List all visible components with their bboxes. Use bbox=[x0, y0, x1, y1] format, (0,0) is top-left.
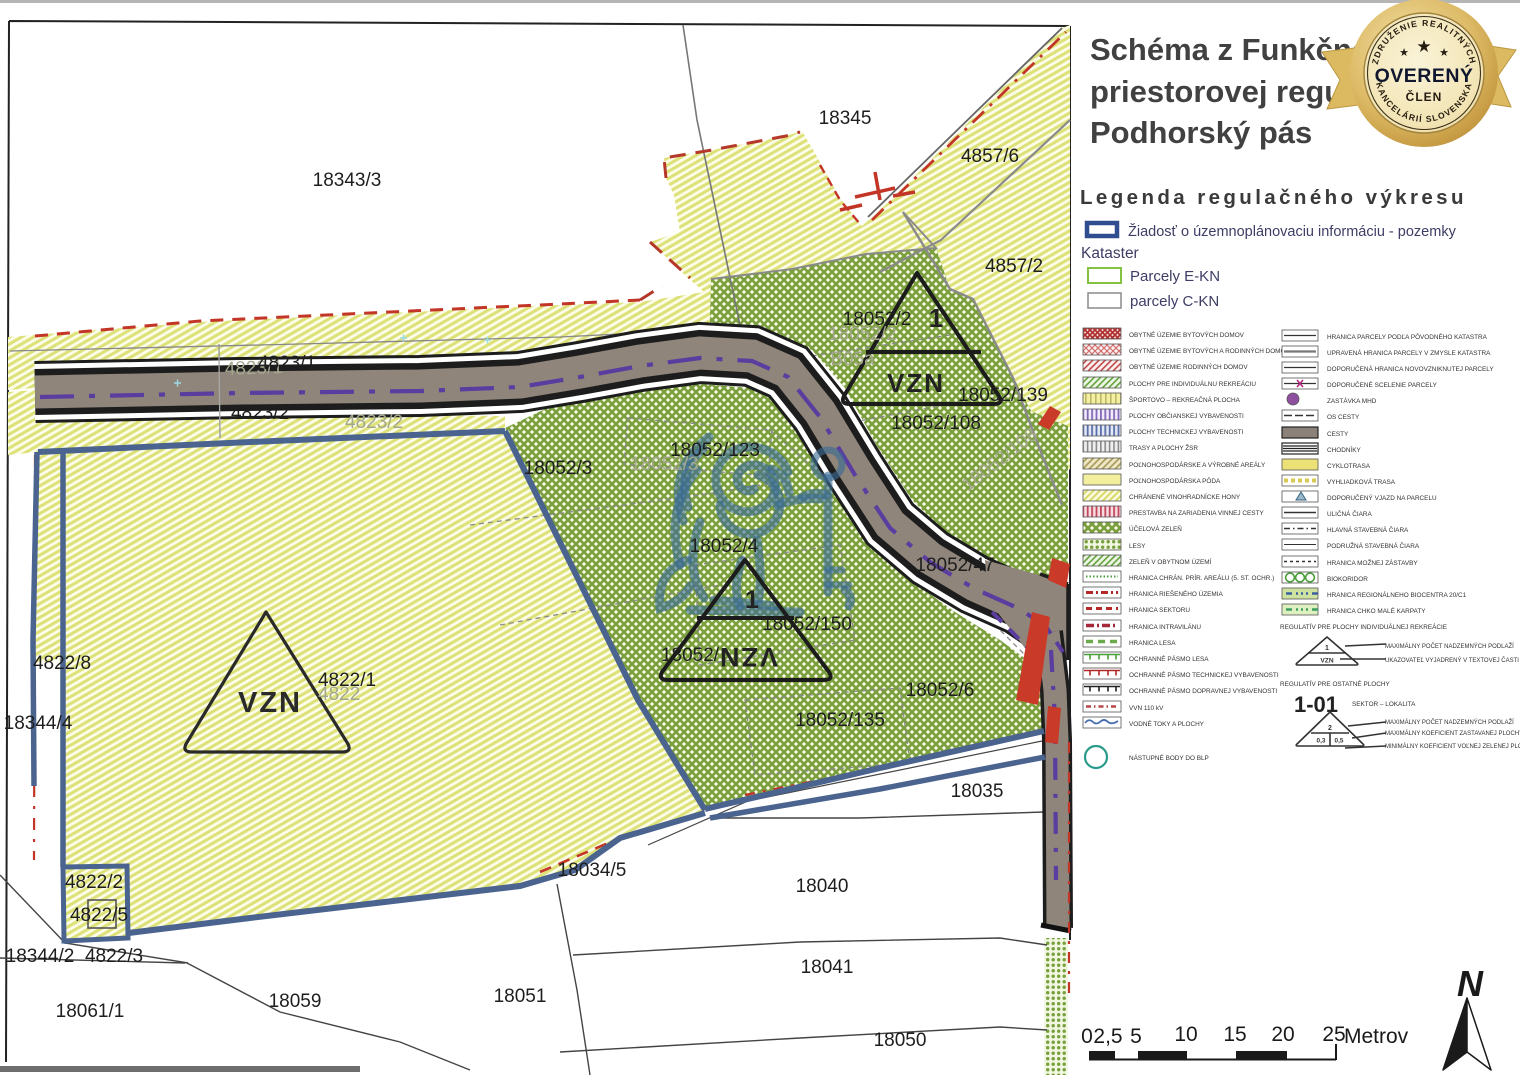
svg-text:HRANICA CHKO MALÉ KARPATY: HRANICA CHKO MALÉ KARPATY bbox=[1327, 606, 1426, 615]
svg-text:CYKLOTRASA: CYKLOTRASA bbox=[1327, 463, 1371, 470]
svg-text:DOPORUČENÁ HRANICA NOVOVZNIKNU: DOPORUČENÁ HRANICA NOVOVZNIKNUTEJ PARCEL… bbox=[1327, 364, 1494, 373]
svg-text:REGULATÍV PRE OSTATNÉ PLOCHY: REGULATÍV PRE OSTATNÉ PLOCHY bbox=[1280, 679, 1390, 688]
svg-text:18061/1: 18061/1 bbox=[56, 1001, 125, 1022]
svg-text:4822/8: 4822/8 bbox=[33, 653, 91, 674]
svg-text:10: 10 bbox=[1174, 1023, 1197, 1046]
svg-text:4822/2: 4822/2 bbox=[65, 872, 123, 893]
svg-text:OBYTNÉ ÚZEMIE BYTOVÝCH DOMOV: OBYTNÉ ÚZEMIE BYTOVÝCH DOMOV bbox=[1129, 330, 1245, 339]
svg-text:★: ★ bbox=[1439, 47, 1449, 59]
svg-text:★: ★ bbox=[1416, 37, 1431, 56]
svg-text:HRANICA LESA: HRANICA LESA bbox=[1129, 640, 1176, 647]
svg-text:MINIMÁLNY KOEFICIENT VOĽNEJ ZE: MINIMÁLNY KOEFICIENT VOĽNEJ ZELENEJ PLOC… bbox=[1385, 743, 1520, 750]
svg-text:OBYTNÉ ÚZEMIE RODINNÝCH DOMOV: OBYTNÉ ÚZEMIE RODINNÝCH DOMOV bbox=[1129, 362, 1248, 371]
svg-text:OS CESTY: OS CESTY bbox=[1327, 414, 1360, 421]
svg-text:OBYTNÉ ÚZEMIE BYTOVÝCH A RODIN: OBYTNÉ ÚZEMIE BYTOVÝCH A RODINNÝCH DOMOV bbox=[1129, 346, 1290, 355]
svg-text:HRANICA SEKTORU: HRANICA SEKTORU bbox=[1129, 607, 1190, 614]
svg-text:UKAZOVATEĽ VYJADRENÝ V TEXTOVE: UKAZOVATEĽ VYJADRENÝ V TEXTOVEJ ČASTI bbox=[1385, 657, 1519, 664]
svg-text:TRASY A PLOCHY ŽSR: TRASY A PLOCHY ŽSR bbox=[1129, 443, 1198, 452]
svg-text:ULIČNÁ ČIARA: ULIČNÁ ČIARA bbox=[1327, 509, 1372, 518]
svg-text:4823/2: 4823/2 bbox=[231, 403, 289, 424]
svg-text:DOPORUČENÉ SCELENIE PARCELY: DOPORUČENÉ SCELENIE PARCELY bbox=[1327, 380, 1438, 389]
svg-text:OCHRANNÉ PÁSMO LESA: OCHRANNÉ PÁSMO LESA bbox=[1129, 654, 1209, 663]
svg-text:18052/4: 18052/4 bbox=[690, 536, 759, 557]
svg-text:VODNÉ TOKY A PLOCHY: VODNÉ TOKY A PLOCHY bbox=[1129, 719, 1205, 728]
svg-text:NÁSTUPNÉ BODY DO BLP: NÁSTUPNÉ BODY DO BLP bbox=[1129, 753, 1209, 762]
svg-text:4823/2: 4823/2 bbox=[345, 412, 403, 433]
svg-text:SEKTOR – LOKALITA: SEKTOR – LOKALITA bbox=[1352, 701, 1416, 708]
svg-text:18343/3: 18343/3 bbox=[313, 170, 382, 191]
svg-text:CHODNÍKY: CHODNÍKY bbox=[1327, 445, 1361, 454]
svg-text:VZN: VZN bbox=[238, 687, 302, 719]
svg-text:PRESTAVBA NA ZARIADENIA VINNEJ: PRESTAVBA NA ZARIADENIA VINNEJ CESTY bbox=[1129, 510, 1264, 517]
svg-text:MAXIMÁLNY POČET NADZEMNÝCH POD: MAXIMÁLNY POČET NADZEMNÝCH PODLAŽÍ bbox=[1385, 642, 1514, 650]
svg-text:N: N bbox=[1457, 963, 1484, 1004]
svg-text:HRANICA PARCELY PODĽA PÔVODNÉH: HRANICA PARCELY PODĽA PÔVODNÉHO KATASTRA bbox=[1327, 332, 1488, 341]
svg-text:ÚČELOVÁ ZELEŇ: ÚČELOVÁ ZELEŇ bbox=[1129, 524, 1182, 533]
svg-text:VZN: VZN bbox=[718, 642, 778, 672]
svg-text:POĽNOHOSPODÁRSKE A VÝROBNÉ ARE: POĽNOHOSPODÁRSKE A VÝROBNÉ AREÁLY bbox=[1129, 460, 1266, 469]
svg-text:ZELEŇ V OBYTNOM ÚZEMÍ: ZELEŇ V OBYTNOM ÚZEMÍ bbox=[1129, 557, 1212, 566]
svg-text:18052/150: 18052/150 bbox=[762, 614, 852, 635]
svg-text:18052/2: 18052/2 bbox=[843, 309, 912, 330]
svg-text:4857/6: 4857/6 bbox=[961, 146, 1019, 167]
svg-text:HRANICA MOŽNEJ ZÁSTAVBY: HRANICA MOŽNEJ ZÁSTAVBY bbox=[1327, 558, 1418, 567]
svg-text:Žiadosť o územnoplánovaciu inf: Žiadosť o územnoplánovaciu informáciu - … bbox=[1128, 223, 1457, 240]
svg-text:HRANICA RIEŠENÉHO ÚZEMIA: HRANICA RIEŠENÉHO ÚZEMIA bbox=[1129, 589, 1223, 598]
svg-text:ČLEN: ČLEN bbox=[1406, 89, 1443, 104]
svg-text:HRANICA REGIONÁLNEHO BIOCENTRA: HRANICA REGIONÁLNEHO BIOCENTRA 20/C1 bbox=[1327, 590, 1467, 599]
svg-text:18035: 18035 bbox=[951, 781, 1004, 802]
svg-text:4823/1: 4823/1 bbox=[258, 353, 316, 374]
svg-text:★: ★ bbox=[1399, 47, 1409, 59]
svg-text:VVN 110 kV: VVN 110 kV bbox=[1129, 705, 1164, 712]
svg-text:18052/: 18052/ bbox=[661, 645, 720, 666]
svg-text:OVERENÝ: OVERENÝ bbox=[1375, 63, 1474, 87]
svg-text:18052/123: 18052/123 bbox=[670, 440, 760, 461]
svg-text:OCHRANNÉ PÁSMO DOPRAVNEJ VYBAV: OCHRANNÉ PÁSMO DOPRAVNEJ VYBAVENOSTI bbox=[1129, 686, 1277, 695]
svg-text:5: 5 bbox=[1130, 1025, 1142, 1048]
svg-text:18344/2: 18344/2 bbox=[6, 946, 75, 967]
svg-text:18052/47: 18052/47 bbox=[915, 555, 994, 576]
svg-text:parcely C-KN: parcely C-KN bbox=[1130, 293, 1219, 310]
svg-text:18052/3: 18052/3 bbox=[524, 458, 593, 479]
svg-text:PODRUŽNÁ STAVEBNÁ ČIARA: PODRUŽNÁ STAVEBNÁ ČIARA bbox=[1327, 541, 1420, 550]
svg-text:2,5: 2,5 bbox=[1093, 1025, 1122, 1048]
svg-text:20: 20 bbox=[1271, 1023, 1294, 1046]
svg-text:VZN: VZN bbox=[887, 368, 945, 398]
svg-text:Parcely E-KN: Parcely E-KN bbox=[1130, 268, 1220, 285]
svg-text:MAXIMÁLNY KOEFICIENT ZASTAVANE: MAXIMÁLNY KOEFICIENT ZASTAVANEJ PLOCHY bbox=[1385, 730, 1520, 737]
svg-text:18059: 18059 bbox=[269, 991, 322, 1012]
svg-text:.B05a: .B05a bbox=[825, 349, 875, 370]
svg-text:18051: 18051 bbox=[494, 986, 547, 1007]
svg-text:VYHLIADKOVÁ TRASA: VYHLIADKOVÁ TRASA bbox=[1327, 477, 1396, 486]
svg-text:PLOCHY PRE INDIVIDUÁLNU REKREÁ: PLOCHY PRE INDIVIDUÁLNU REKREÁCIU bbox=[1129, 379, 1256, 388]
svg-text:REGULATÍV PRE PLOCHY INDIVIDUÁ: REGULATÍV PRE PLOCHY INDIVIDUÁLNEJ REKRE… bbox=[1280, 622, 1447, 631]
svg-text:4857/2: 4857/2 bbox=[985, 256, 1043, 277]
svg-text:18345: 18345 bbox=[819, 108, 872, 129]
svg-text:18041: 18041 bbox=[801, 957, 854, 978]
svg-text:HRANICA INTRAVILÁNU: HRANICA INTRAVILÁNU bbox=[1129, 622, 1201, 631]
svg-text:18052/108: 18052/108 bbox=[891, 413, 981, 434]
svg-text:18034/5: 18034/5 bbox=[558, 860, 627, 881]
svg-text:Kataster: Kataster bbox=[1081, 245, 1139, 262]
svg-text:HRANICA CHRÁN. PRÍR. AREÁLU (5: HRANICA CHRÁN. PRÍR. AREÁLU (5. ST. OCHR… bbox=[1129, 573, 1274, 582]
svg-text:18052/139: 18052/139 bbox=[958, 385, 1048, 406]
svg-text:ŠPORTOVO – REKREAČNÁ PLOCHA: ŠPORTOVO – REKREAČNÁ PLOCHA bbox=[1129, 395, 1241, 404]
svg-text:4822/3: 4822/3 bbox=[85, 946, 143, 967]
svg-text:1: 1 bbox=[1325, 645, 1329, 652]
svg-text:1: 1 bbox=[745, 586, 759, 614]
svg-text:18052/6: 18052/6 bbox=[906, 680, 975, 701]
svg-text:1: 1 bbox=[929, 303, 943, 333]
svg-text:OCHRANNÉ PÁSMO TECHNICKEJ VYBA: OCHRANNÉ PÁSMO TECHNICKEJ VYBAVENOSTI bbox=[1129, 670, 1279, 679]
svg-text:18040: 18040 bbox=[796, 876, 849, 897]
svg-text:18344/4: 18344/4 bbox=[4, 713, 73, 734]
svg-text:Podhorský pás: Podhorský pás bbox=[1090, 115, 1312, 150]
svg-text:POĽNOHOSPODÁRSKA PÔDA: POĽNOHOSPODÁRSKA PÔDA bbox=[1129, 476, 1221, 485]
svg-text:BIOKORIDOR: BIOKORIDOR bbox=[1327, 576, 1368, 583]
svg-text:LESY: LESY bbox=[1129, 543, 1146, 550]
svg-text:VZN: VZN bbox=[1320, 658, 1333, 665]
svg-text:15: 15 bbox=[1223, 1023, 1246, 1046]
svg-text:DOPORUČENÝ VJAZD NA PARCELU: DOPORUČENÝ VJAZD NA PARCELU bbox=[1327, 493, 1437, 502]
svg-text:4822/1: 4822/1 bbox=[318, 670, 376, 691]
svg-text:18052/135: 18052/135 bbox=[795, 710, 885, 731]
svg-text:18050: 18050 bbox=[874, 1030, 927, 1051]
svg-text:25: 25 bbox=[1322, 1023, 1345, 1046]
svg-text:Metrov: Metrov bbox=[1344, 1025, 1409, 1048]
svg-text:Legenda regulačného výkresu: Legenda regulačného výkresu bbox=[1080, 186, 1467, 209]
svg-text:4822/5: 4822/5 bbox=[70, 905, 128, 926]
svg-text:2: 2 bbox=[1328, 725, 1332, 732]
svg-text:PLOCHY TECHNICKEJ VYBAVENOSTI: PLOCHY TECHNICKEJ VYBAVENOSTI bbox=[1129, 429, 1244, 436]
svg-text:CHRÁNENÉ VINOHRADNÍCKE HONY: CHRÁNENÉ VINOHRADNÍCKE HONY bbox=[1129, 492, 1241, 501]
svg-text:HLAVNÁ STAVEBNÁ ČIARA: HLAVNÁ STAVEBNÁ ČIARA bbox=[1327, 525, 1409, 534]
svg-text:ZASTÁVKA MHD: ZASTÁVKA MHD bbox=[1327, 396, 1377, 405]
svg-text:UPRAVENÁ HRANICA PARCELY V ZMY: UPRAVENÁ HRANICA PARCELY V ZMYSLE KATAST… bbox=[1327, 348, 1491, 357]
svg-text:MAXIMÁLNY POČET NADZEMNÝCH POD: MAXIMÁLNY POČET NADZEMNÝCH PODLAŽÍ bbox=[1385, 718, 1514, 726]
svg-text:PLOCHY OBČIANSKEJ VYBAVENOSTI: PLOCHY OBČIANSKEJ VYBAVENOSTI bbox=[1129, 411, 1244, 420]
svg-text:0,5: 0,5 bbox=[1335, 738, 1344, 745]
svg-text:CESTY: CESTY bbox=[1327, 431, 1349, 438]
svg-text:0: 0 bbox=[1081, 1025, 1093, 1048]
svg-text:0,3: 0,3 bbox=[1317, 738, 1326, 745]
